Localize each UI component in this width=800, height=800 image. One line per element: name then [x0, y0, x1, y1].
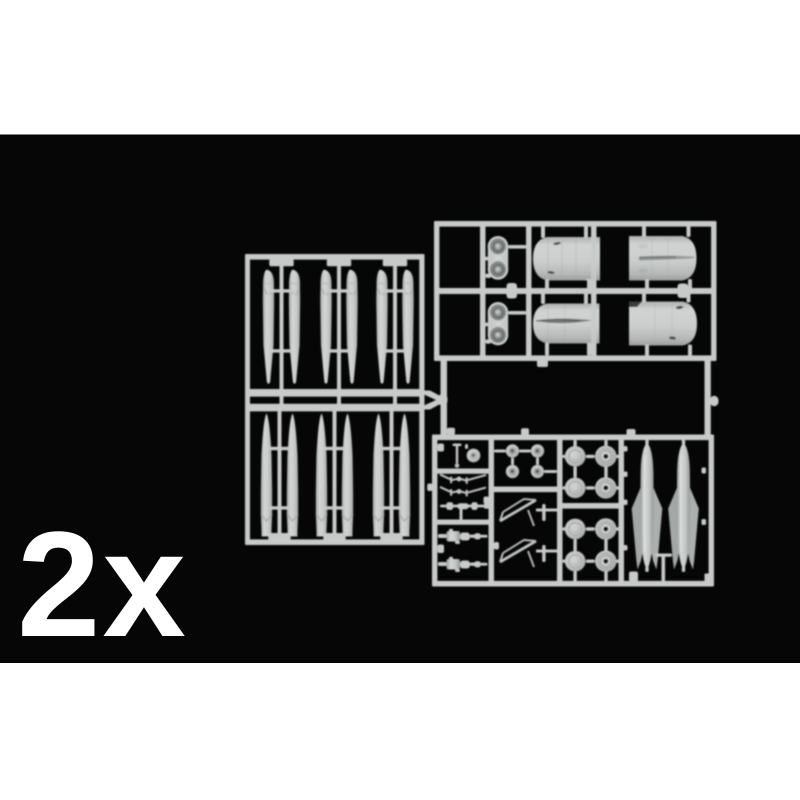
svg-text:2x: 2x: [17, 500, 188, 668]
